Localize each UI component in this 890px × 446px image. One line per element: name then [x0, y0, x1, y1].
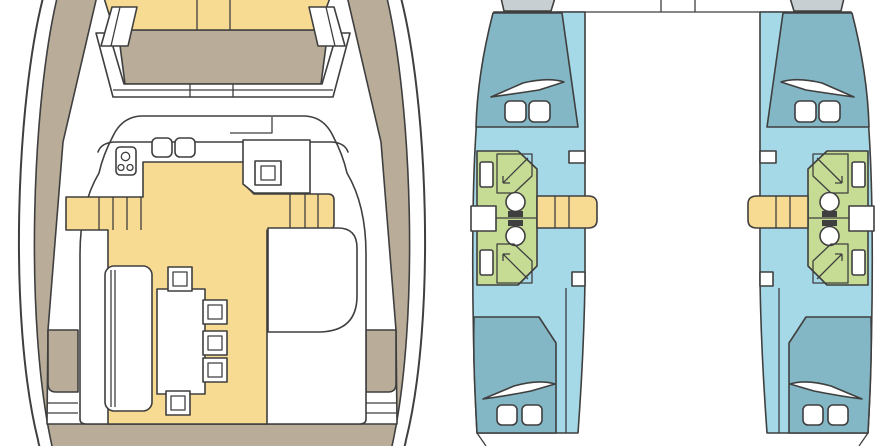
- stool-right-2: [203, 331, 227, 355]
- washbasin-forward-icon: [480, 162, 493, 187]
- port-hull: [471, 0, 597, 446]
- toilet-aft-tank: [508, 220, 523, 226]
- dining-table: [157, 289, 205, 394]
- doorway-aft: [572, 272, 585, 286]
- bench-sofa: [105, 266, 152, 411]
- mast-support: [661, 0, 695, 12]
- washbasin-aft-icon: [480, 250, 493, 275]
- starboard-hull: [748, 0, 874, 446]
- toilet-forward-tank: [508, 211, 523, 217]
- bow-seat: [104, 0, 330, 30]
- toilet-aft-icon: [506, 227, 525, 246]
- stool-top: [168, 267, 192, 291]
- bathroom-door: [471, 206, 496, 231]
- aft-quarter-port: [48, 330, 78, 392]
- aft-quarter-starboard: [366, 330, 396, 392]
- stern-tail-line: [477, 433, 486, 446]
- aft-pillow-left: [497, 405, 517, 425]
- settee: [268, 228, 357, 332]
- foredeck-lounge: [118, 30, 328, 84]
- floor-plan-svg: [0, 0, 890, 446]
- bow-tip: [501, 0, 555, 11]
- hull-steps: [537, 196, 597, 228]
- sink-right-icon: [175, 138, 195, 157]
- toilet-forward-icon: [506, 193, 525, 212]
- forward-pillow-left: [505, 101, 526, 122]
- forward-pillow-right: [529, 101, 550, 122]
- doorway-forward: [569, 151, 585, 163]
- hulls-plan: [471, 0, 874, 446]
- forward-cabin-berth: [476, 13, 578, 127]
- sink-left-icon: [152, 138, 172, 157]
- oven-icon: [255, 161, 281, 185]
- stool-bottom: [166, 391, 190, 415]
- catamaran-layout-diagram: [0, 0, 890, 446]
- deck-plan: [19, 0, 425, 446]
- aft-pillow-right: [522, 405, 542, 425]
- stool-right-1: [203, 300, 227, 324]
- stool-right-3: [203, 358, 227, 382]
